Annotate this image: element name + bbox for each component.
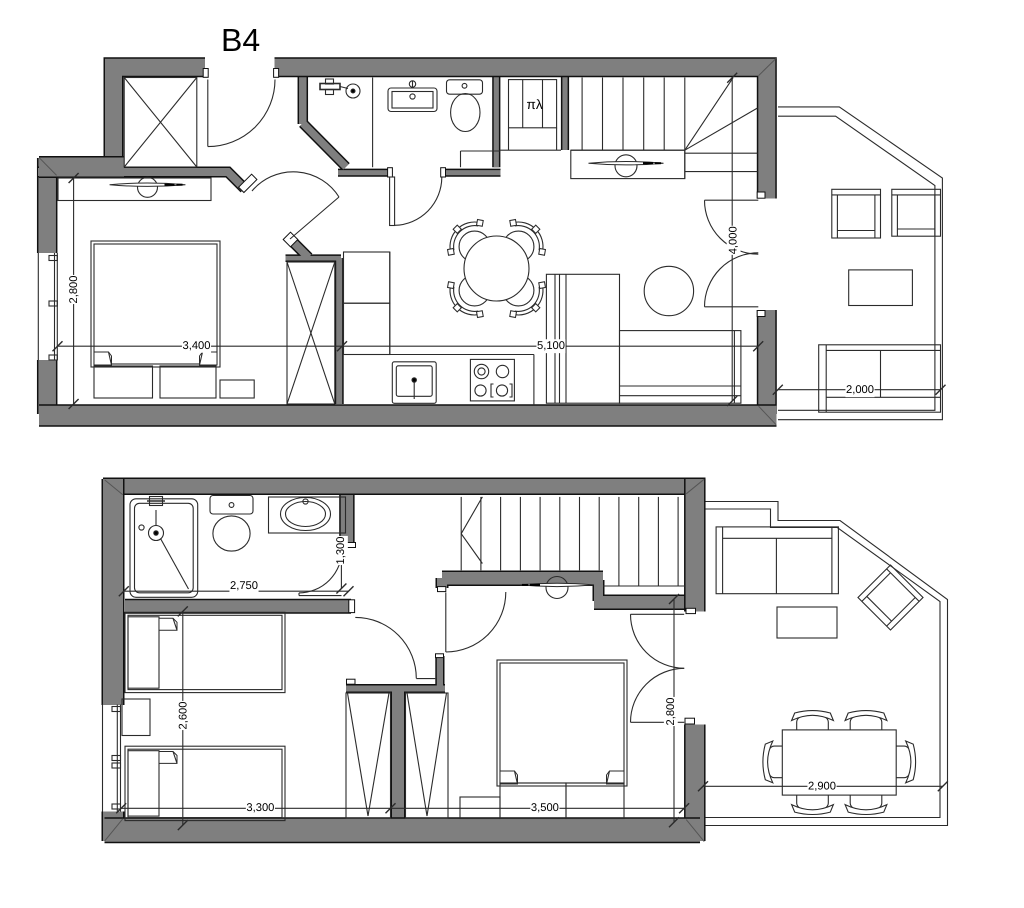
svg-text:4,000: 4,000 <box>728 226 740 254</box>
svg-text:2,800: 2,800 <box>665 698 677 726</box>
svg-text:1,300: 1,300 <box>335 537 347 565</box>
svg-text:2,750: 2,750 <box>230 580 258 592</box>
svg-text:3,400: 3,400 <box>183 340 211 352</box>
svg-text:2,000: 2,000 <box>846 384 874 396</box>
svg-text:3,300: 3,300 <box>246 802 274 814</box>
svg-text:5,100: 5,100 <box>537 340 565 352</box>
svg-text:2,600: 2,600 <box>177 702 189 730</box>
svg-text:B4: B4 <box>221 22 260 58</box>
svg-text:2,900: 2,900 <box>808 781 836 793</box>
svg-text:πλ: πλ <box>527 97 543 112</box>
svg-text:2,800: 2,800 <box>68 276 80 304</box>
svg-text:3,500: 3,500 <box>531 802 559 814</box>
